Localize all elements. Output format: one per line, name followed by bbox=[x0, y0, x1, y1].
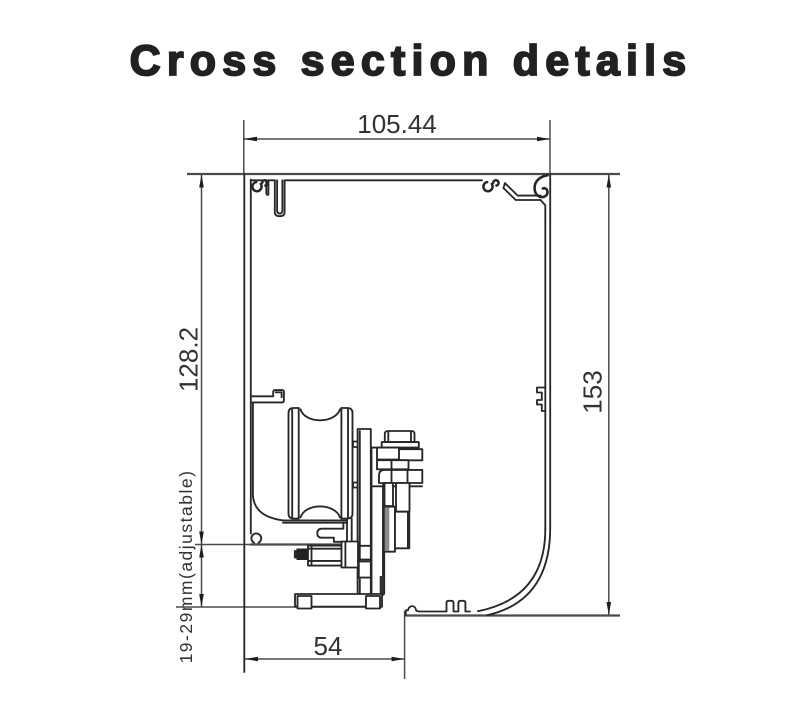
svg-text:128.2: 128.2 bbox=[174, 327, 204, 392]
svg-text:153: 153 bbox=[578, 370, 608, 413]
svg-text:19-29mm(adjustable): 19-29mm(adjustable) bbox=[176, 470, 196, 664]
svg-text:54: 54 bbox=[314, 631, 343, 661]
svg-text:105.44: 105.44 bbox=[357, 109, 437, 139]
